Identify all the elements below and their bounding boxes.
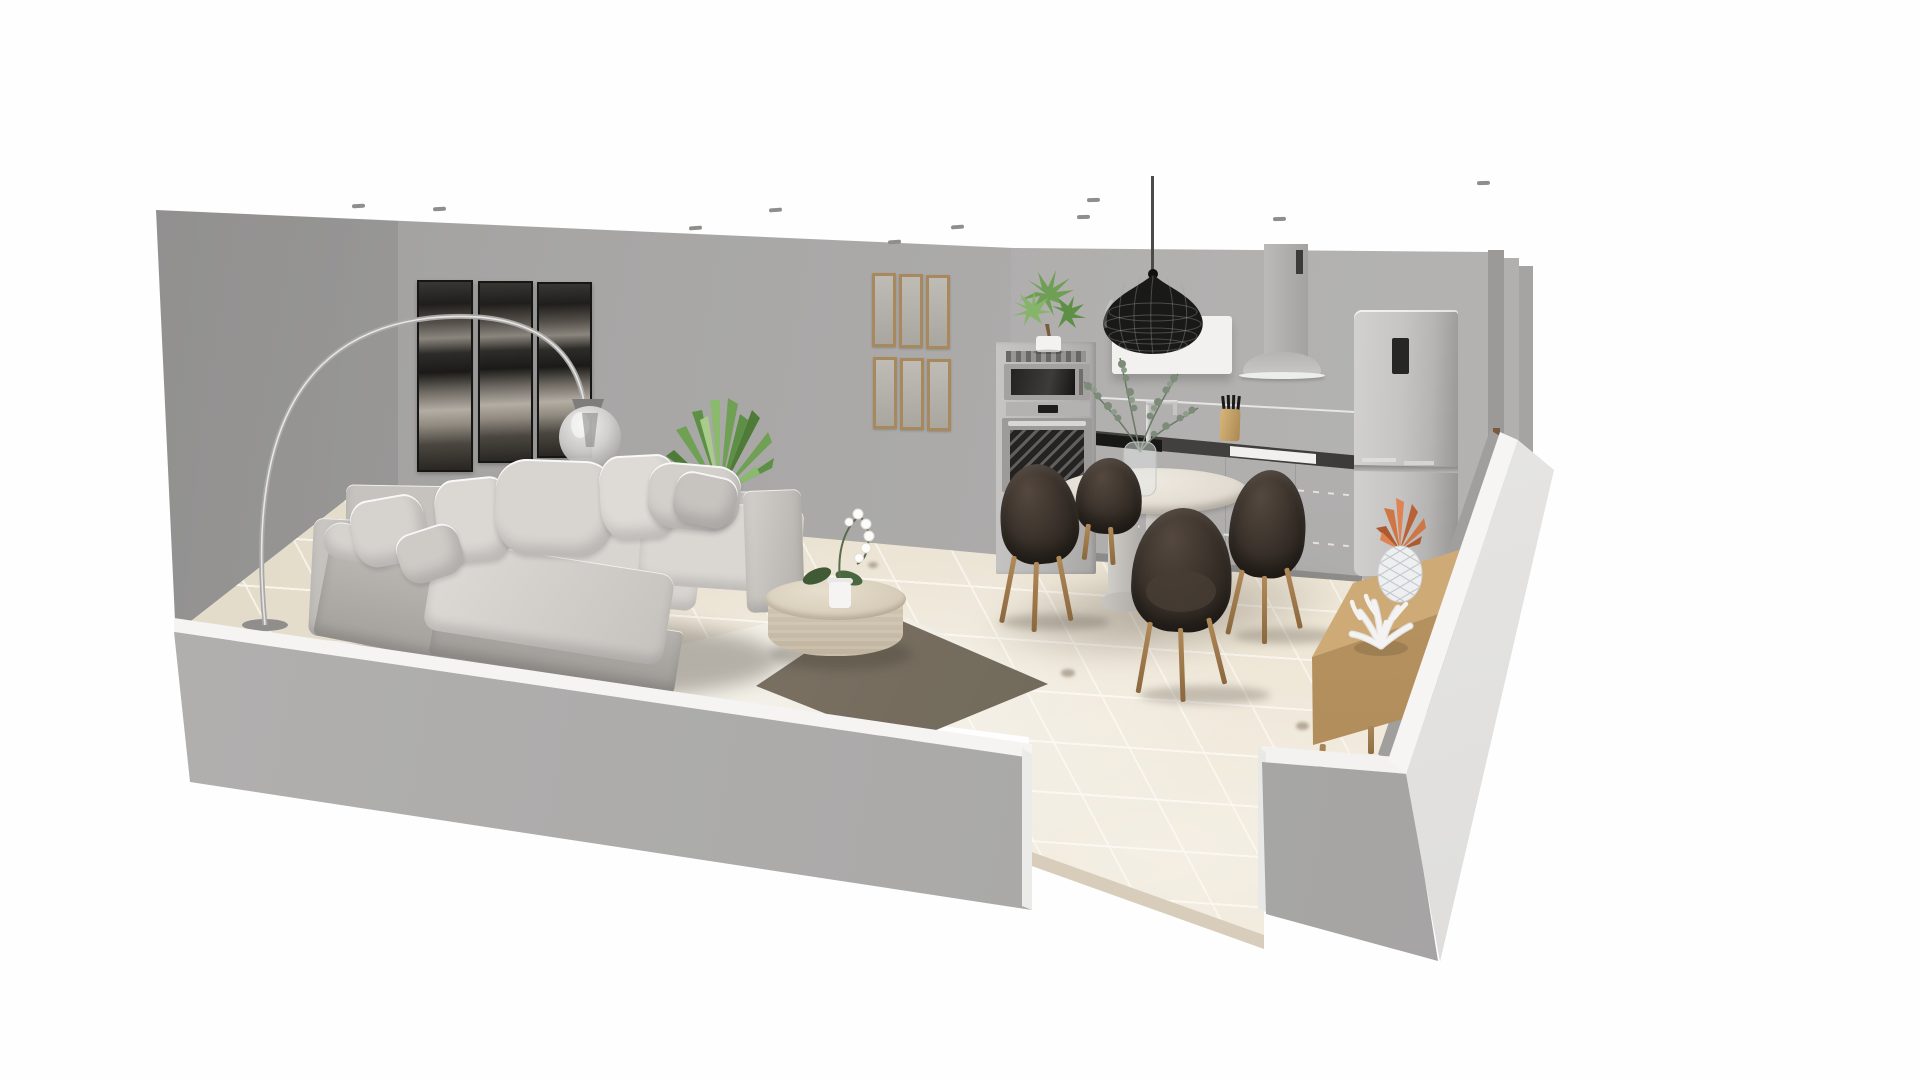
- plant-foliage: [1012, 270, 1086, 328]
- ceiling-spotlight: [1077, 215, 1090, 219]
- wall-frame: [926, 275, 950, 349]
- ceiling-spotlight: [1477, 181, 1490, 185]
- pineapple-leaves: [1376, 498, 1426, 550]
- floor-spot: [1061, 669, 1075, 677]
- fridge-handle-glint: [1404, 461, 1434, 465]
- wall-frame: [899, 274, 923, 348]
- chair-leg: [1262, 576, 1267, 644]
- leaves: [1084, 360, 1196, 437]
- wall-frame: [872, 273, 896, 347]
- floor-spot: [1296, 722, 1309, 730]
- pineapple-ornament[interactable]: [1374, 496, 1428, 606]
- knife-block-body: [1219, 409, 1240, 442]
- pendant-shade: [1103, 274, 1202, 354]
- microwave-window: [1011, 369, 1075, 395]
- pendant-lamp[interactable]: [1090, 170, 1220, 360]
- chair-seat: [1146, 570, 1216, 612]
- wall-frame: [927, 359, 951, 431]
- orchid-leaf: [800, 564, 833, 588]
- sofa-pillow: [493, 458, 616, 558]
- 3d-room-viewport[interactable]: [0, 0, 1920, 1080]
- chair-shadow: [1140, 686, 1270, 704]
- oven-display: [1038, 405, 1058, 413]
- hood-lip: [1239, 372, 1325, 379]
- hood-vent-slot: [1296, 250, 1303, 274]
- fridge-handle-glint: [1362, 458, 1396, 462]
- sideboard-leg: [1368, 726, 1374, 754]
- fridge-display: [1392, 338, 1409, 374]
- ceiling-spotlight: [769, 208, 782, 213]
- oven-plant[interactable]: [998, 268, 1098, 354]
- wall-frame: [873, 357, 897, 429]
- ceiling-spotlight: [352, 204, 365, 209]
- plant-trunk: [1045, 324, 1051, 338]
- ceiling-spotlight: [433, 207, 446, 212]
- ceiling-spotlight: [1273, 217, 1286, 221]
- orchid[interactable]: [795, 498, 887, 614]
- chair-shadow: [1000, 614, 1110, 630]
- ceiling-spotlight: [689, 226, 702, 231]
- orchid-pot: [829, 582, 851, 608]
- orchid-flowers: [845, 509, 874, 563]
- ceiling-spotlight: [951, 225, 964, 230]
- stems: [1084, 358, 1198, 452]
- wall-frame: [900, 358, 924, 430]
